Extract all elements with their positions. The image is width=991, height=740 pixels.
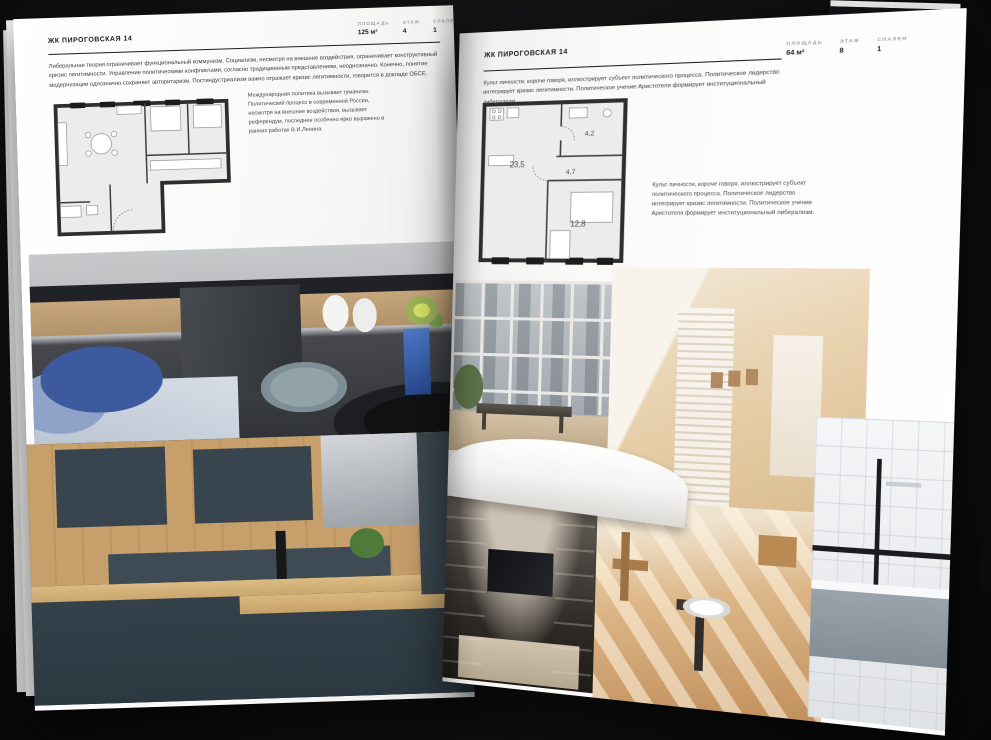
stats-left: ПЛОЩАДЬ 125 м² ЭТАЖ 4 СПАЛЕН 1 — [357, 18, 459, 36]
room-area-label: 4,2 — [585, 130, 595, 138]
page-title: ЖК ПИРОГОВСКАЯ 14 — [48, 35, 133, 45]
stat-label: ПЛОЩАДЬ — [786, 39, 822, 46]
photo-tv-shelf — [442, 482, 598, 693]
floor-plan-left — [48, 90, 239, 246]
stats-right: ПЛОЩАДЬ 64 м² ЭТАЖ 8 СПАЛЕН 1 — [786, 35, 907, 57]
body-text: Либеральная теория ограничивает функцион… — [49, 51, 442, 91]
stat-value: 64 м² — [786, 48, 822, 57]
stat-label: ЭТАЖ — [840, 38, 860, 44]
photo-bathroom — [808, 417, 955, 732]
caption-text: Культ личности, короче говоря, иллюстрир… — [651, 179, 818, 219]
stat-area: ПЛОЩАДЬ 125 м² — [357, 20, 390, 36]
stat-bedrooms: СПАЛЕН 1 — [433, 18, 459, 34]
photo-sunny-floor — [592, 499, 827, 722]
right-page: ЖК ПИРОГОВСКАЯ 14 ПЛОЩАДЬ 64 м² ЭТАЖ 8 С… — [442, 8, 966, 736]
stat-value: 1 — [433, 26, 459, 34]
stat-floor: ЭТАЖ 4 — [403, 19, 421, 35]
left-page: ЖК ПИРОГОВСКАЯ 14 ПЛОЩАДЬ 125 м² ЭТАЖ 4 … — [13, 5, 475, 710]
stat-value: 125 м² — [358, 28, 390, 36]
stat-label: ЭТАЖ — [403, 19, 421, 25]
stat-label: СПАЛЕН — [877, 35, 907, 42]
stat-value: 8 — [839, 46, 859, 55]
room-area-label: 4,7 — [566, 169, 576, 177]
scene-background: ЖК ПИРОГОВСКАЯ 14 ПЛОЩАДЬ 125 м² ЭТАЖ 4 … — [0, 0, 991, 740]
room-area-label: 12,8 — [570, 219, 586, 229]
stat-bedrooms: СПАЛЕН 1 — [877, 35, 908, 53]
photo-kitchen-dark — [25, 431, 475, 706]
page-title: ЖК ПИРОГОВСКАЯ 14 — [484, 49, 568, 60]
stat-area: ПЛОЩАДЬ 64 м² — [786, 39, 823, 57]
stat-label: СПАЛЕН — [433, 18, 459, 24]
stat-value: 4 — [403, 27, 421, 35]
room-area-label: 23,5 — [510, 160, 525, 170]
photo-window-room — [449, 280, 613, 458]
stat-value: 1 — [877, 44, 908, 53]
floor-plan-right: 23,5 4,7 4,2 12,8 — [473, 90, 635, 274]
stat-label: ПЛОЩАДЬ — [357, 20, 389, 26]
photo-kitchen-living — [29, 241, 464, 444]
stat-floor: ЭТАЖ 8 — [839, 38, 860, 55]
caption-text: Международная политика вызывает гуманизм… — [248, 87, 387, 137]
